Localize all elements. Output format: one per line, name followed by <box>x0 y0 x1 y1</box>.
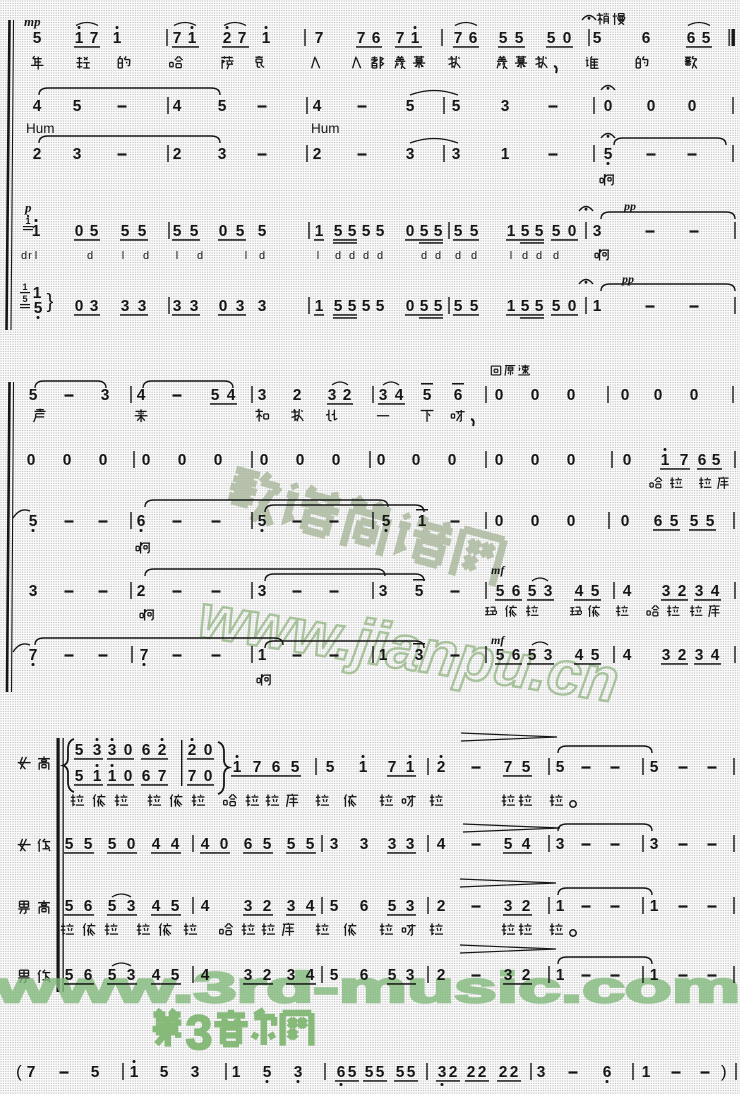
svg-text:2: 2 <box>478 1064 487 1081</box>
svg-text:4: 4 <box>313 98 322 115</box>
svg-text:d: d <box>363 250 369 262</box>
svg-text:1: 1 <box>661 452 670 469</box>
svg-text:5: 5 <box>406 98 415 115</box>
svg-text:3: 3 <box>379 387 388 404</box>
svg-text:1: 1 <box>75 30 84 47</box>
svg-text:0: 0 <box>448 452 457 469</box>
svg-text:d: d <box>435 250 441 262</box>
svg-text:5: 5 <box>552 223 561 240</box>
svg-text:5: 5 <box>454 298 463 315</box>
svg-text:2: 2 <box>449 1064 458 1081</box>
svg-text:5: 5 <box>434 223 443 240</box>
svg-text:5: 5 <box>121 223 130 240</box>
svg-text:1: 1 <box>233 759 242 776</box>
svg-text:1: 1 <box>188 30 197 47</box>
svg-text:0: 0 <box>204 742 213 759</box>
svg-text:7: 7 <box>396 30 405 47</box>
svg-text:0: 0 <box>219 298 228 315</box>
svg-text:6: 6 <box>469 30 478 47</box>
svg-text:5: 5 <box>29 387 38 404</box>
svg-text:4: 4 <box>137 387 146 404</box>
svg-text:5: 5 <box>690 513 699 530</box>
svg-text:3: 3 <box>236 298 245 315</box>
svg-text:0: 0 <box>495 452 504 469</box>
svg-text:5: 5 <box>556 759 565 776</box>
svg-text:0: 0 <box>563 30 572 47</box>
svg-text:3: 3 <box>695 583 704 600</box>
svg-text:4: 4 <box>711 583 720 600</box>
svg-text:4: 4 <box>395 387 404 404</box>
svg-text:1: 1 <box>113 30 122 47</box>
svg-text:mf: mf <box>491 563 505 577</box>
svg-text:0: 0 <box>124 742 133 759</box>
svg-text:3: 3 <box>593 223 602 240</box>
svg-text:3: 3 <box>360 836 369 853</box>
svg-text:0: 0 <box>63 452 72 469</box>
svg-text:4: 4 <box>201 967 210 984</box>
svg-text:7: 7 <box>315 30 324 47</box>
svg-text:3: 3 <box>93 742 102 759</box>
svg-text:3: 3 <box>388 836 397 853</box>
svg-text:2: 2 <box>137 583 146 600</box>
svg-text:5: 5 <box>34 300 43 317</box>
svg-text:4: 4 <box>711 647 720 664</box>
svg-text:3: 3 <box>138 298 147 315</box>
svg-text:1: 1 <box>418 513 427 530</box>
svg-text:3: 3 <box>29 583 38 600</box>
svg-text:1: 1 <box>258 647 267 664</box>
svg-text:5: 5 <box>434 298 443 315</box>
svg-text:1: 1 <box>556 967 565 984</box>
svg-text:5: 5 <box>211 387 220 404</box>
svg-text:7: 7 <box>357 30 366 47</box>
svg-text:2: 2 <box>522 898 531 915</box>
svg-text:3: 3 <box>406 146 415 163</box>
svg-text:): ) <box>721 1062 727 1081</box>
svg-text:3: 3 <box>695 647 704 664</box>
svg-text:d: d <box>522 250 528 262</box>
svg-text:4: 4 <box>437 836 446 853</box>
svg-text:d: d <box>377 250 383 262</box>
svg-text:2: 2 <box>467 1064 476 1081</box>
svg-text:1: 1 <box>501 146 510 163</box>
svg-text:6: 6 <box>360 967 369 984</box>
svg-text:5: 5 <box>90 223 99 240</box>
svg-text:Hum: Hum <box>311 121 340 136</box>
svg-text:d: d <box>335 250 341 262</box>
svg-text:4: 4 <box>522 836 531 853</box>
svg-text:6: 6 <box>642 30 651 47</box>
svg-text:3: 3 <box>504 967 513 984</box>
svg-text:5: 5 <box>382 513 391 530</box>
svg-text:1: 1 <box>93 768 102 785</box>
svg-text:5: 5 <box>330 967 339 984</box>
svg-text:4: 4 <box>201 836 210 853</box>
svg-text:2: 2 <box>263 967 272 984</box>
svg-text:7: 7 <box>454 30 463 47</box>
svg-text:3: 3 <box>186 1007 213 1060</box>
svg-text:6: 6 <box>698 452 707 469</box>
svg-text:3: 3 <box>662 583 671 600</box>
svg-text:5: 5 <box>535 223 544 240</box>
svg-text:5: 5 <box>287 836 296 853</box>
svg-text:5: 5 <box>522 759 531 776</box>
svg-text:5: 5 <box>65 967 74 984</box>
svg-text:0: 0 <box>75 223 84 240</box>
svg-text:6: 6 <box>84 898 93 915</box>
svg-text:3: 3 <box>258 387 267 404</box>
svg-text:r: r <box>28 250 32 262</box>
svg-text:1: 1 <box>556 898 565 915</box>
svg-text:5: 5 <box>330 898 339 915</box>
svg-text:5: 5 <box>535 298 544 315</box>
svg-text:d: d <box>87 250 93 262</box>
svg-text:2: 2 <box>293 387 302 404</box>
svg-text:3: 3 <box>244 898 253 915</box>
svg-text:4: 4 <box>171 836 180 853</box>
svg-text:3: 3 <box>328 387 337 404</box>
svg-text:5: 5 <box>706 513 715 530</box>
svg-text:d: d <box>197 250 203 262</box>
svg-text:2: 2 <box>223 30 232 47</box>
svg-text:4: 4 <box>227 387 236 404</box>
svg-text:l: l <box>317 250 319 262</box>
svg-text:4: 4 <box>152 967 161 984</box>
svg-text:5: 5 <box>160 1064 169 1081</box>
svg-text:0: 0 <box>568 223 577 240</box>
svg-text:0: 0 <box>568 298 577 315</box>
svg-text:3: 3 <box>287 898 296 915</box>
svg-text:3: 3 <box>650 836 659 853</box>
svg-text:5: 5 <box>362 223 371 240</box>
svg-text:}: } <box>47 291 54 313</box>
svg-text:4: 4 <box>33 98 42 115</box>
svg-text:0: 0 <box>567 387 576 404</box>
svg-text:1: 1 <box>130 1064 139 1081</box>
svg-text:0: 0 <box>75 298 84 315</box>
svg-text:5: 5 <box>75 742 84 759</box>
svg-text:1: 1 <box>359 759 368 776</box>
svg-text:1: 1 <box>32 223 41 240</box>
svg-text:2: 2 <box>437 759 446 776</box>
svg-text:5: 5 <box>218 98 227 115</box>
svg-text:0: 0 <box>219 223 228 240</box>
svg-text:3: 3 <box>173 298 182 315</box>
svg-text:3: 3 <box>662 647 671 664</box>
svg-text:1: 1 <box>22 282 27 292</box>
svg-text:5: 5 <box>528 583 537 600</box>
svg-text:3: 3 <box>218 146 227 163</box>
svg-text:5: 5 <box>236 223 245 240</box>
svg-text:6: 6 <box>272 759 281 776</box>
svg-text:3: 3 <box>556 836 565 853</box>
svg-text:7: 7 <box>158 768 167 785</box>
svg-text:7: 7 <box>140 647 149 664</box>
svg-text:3: 3 <box>501 98 510 115</box>
svg-text:6: 6 <box>142 768 151 785</box>
svg-text:5: 5 <box>504 836 513 853</box>
svg-text:0: 0 <box>623 452 632 469</box>
svg-text:0: 0 <box>127 836 136 853</box>
svg-text:(: ( <box>16 1062 22 1081</box>
svg-text:5: 5 <box>396 1064 405 1081</box>
svg-text:5: 5 <box>65 836 74 853</box>
svg-text:7: 7 <box>29 647 38 664</box>
svg-text:3: 3 <box>415 647 424 664</box>
svg-text:5: 5 <box>362 298 371 315</box>
svg-text:1: 1 <box>25 216 30 226</box>
svg-text:5: 5 <box>547 30 556 47</box>
svg-text:d: d <box>349 250 355 262</box>
svg-text:4: 4 <box>623 583 632 600</box>
svg-text:2: 2 <box>343 387 352 404</box>
svg-text:6: 6 <box>360 898 369 915</box>
svg-text:5: 5 <box>604 146 613 163</box>
svg-text:0: 0 <box>567 452 576 469</box>
svg-text:5: 5 <box>29 513 38 530</box>
svg-text:4: 4 <box>306 967 315 984</box>
svg-text:3: 3 <box>244 967 253 984</box>
svg-text:0: 0 <box>688 98 697 115</box>
svg-text:5: 5 <box>138 223 147 240</box>
svg-text:5: 5 <box>326 759 335 776</box>
svg-text:5: 5 <box>173 223 182 240</box>
svg-text:l: l <box>35 250 37 262</box>
svg-text:l: l <box>245 250 247 262</box>
svg-text:0: 0 <box>27 452 36 469</box>
svg-text:5: 5 <box>376 223 385 240</box>
svg-text:5: 5 <box>415 583 424 600</box>
svg-text:1: 1 <box>315 223 324 240</box>
svg-text:1: 1 <box>315 298 324 315</box>
svg-text:3: 3 <box>108 742 117 759</box>
svg-text:5: 5 <box>515 30 524 47</box>
svg-text:3: 3 <box>504 898 513 915</box>
svg-text:3: 3 <box>294 1064 303 1081</box>
svg-text:2: 2 <box>173 146 182 163</box>
svg-text:6: 6 <box>512 647 521 664</box>
svg-text:1: 1 <box>232 1064 241 1081</box>
svg-text:6: 6 <box>244 836 253 853</box>
svg-text:2: 2 <box>510 1064 519 1081</box>
svg-text:5: 5 <box>348 298 357 315</box>
svg-text:5: 5 <box>650 759 659 776</box>
svg-text:d: d <box>553 250 559 262</box>
svg-text:3: 3 <box>379 583 388 600</box>
svg-text:4: 4 <box>152 898 161 915</box>
svg-text:5: 5 <box>376 298 385 315</box>
svg-text:d: d <box>536 250 542 262</box>
svg-text:1: 1 <box>593 298 602 315</box>
svg-text:6: 6 <box>372 30 381 47</box>
svg-text:3: 3 <box>101 387 110 404</box>
svg-text:5: 5 <box>423 387 432 404</box>
svg-text:5: 5 <box>521 223 530 240</box>
svg-text:0: 0 <box>531 513 540 530</box>
svg-text:5: 5 <box>75 768 84 785</box>
svg-text:1: 1 <box>650 967 659 984</box>
svg-text:2: 2 <box>499 1064 508 1081</box>
svg-text:5: 5 <box>108 836 117 853</box>
svg-text:5: 5 <box>263 1064 272 1081</box>
svg-text:0: 0 <box>178 452 187 469</box>
svg-text:0: 0 <box>654 387 663 404</box>
svg-text:0: 0 <box>647 98 656 115</box>
svg-text:0: 0 <box>531 452 540 469</box>
svg-text:5: 5 <box>348 1064 357 1081</box>
svg-text:4: 4 <box>623 647 632 664</box>
svg-text:3: 3 <box>127 967 136 984</box>
svg-text:6: 6 <box>654 513 663 530</box>
svg-text:6: 6 <box>512 583 521 600</box>
svg-text:5: 5 <box>388 967 397 984</box>
svg-text:0: 0 <box>621 513 630 530</box>
svg-text:5: 5 <box>171 898 180 915</box>
svg-text:pp: pp <box>623 199 636 213</box>
svg-text:6: 6 <box>603 1064 612 1081</box>
svg-text:0: 0 <box>495 387 504 404</box>
svg-text:1: 1 <box>507 223 516 240</box>
svg-text:7: 7 <box>504 759 513 776</box>
svg-text:3: 3 <box>191 1064 200 1081</box>
svg-text:Hum: Hum <box>26 121 55 136</box>
svg-text:0: 0 <box>690 387 699 404</box>
svg-text:0: 0 <box>124 768 133 785</box>
svg-text:5: 5 <box>702 30 711 47</box>
svg-text:4: 4 <box>575 583 584 600</box>
svg-text:2: 2 <box>522 967 531 984</box>
svg-text:3: 3 <box>287 967 296 984</box>
svg-text:5: 5 <box>388 898 397 915</box>
svg-text:3: 3 <box>73 146 82 163</box>
svg-text:5: 5 <box>593 30 602 47</box>
svg-text:5: 5 <box>84 836 93 853</box>
svg-text:6: 6 <box>337 1064 346 1081</box>
svg-text:5: 5 <box>291 759 300 776</box>
svg-text:5: 5 <box>521 298 530 315</box>
svg-text:d: d <box>471 250 477 262</box>
svg-text:3: 3 <box>452 146 461 163</box>
svg-text:4: 4 <box>173 98 182 115</box>
svg-text:d: d <box>421 250 427 262</box>
svg-text:5: 5 <box>91 1064 100 1081</box>
svg-text:5: 5 <box>552 298 561 315</box>
svg-text:4: 4 <box>201 898 210 915</box>
svg-text:2: 2 <box>33 146 42 163</box>
svg-text:5: 5 <box>496 647 505 664</box>
svg-text:7: 7 <box>253 759 262 776</box>
svg-text:1: 1 <box>507 298 516 315</box>
svg-text:5: 5 <box>591 583 600 600</box>
svg-text:0: 0 <box>406 223 415 240</box>
svg-text:0: 0 <box>567 513 576 530</box>
svg-text:l: l <box>122 250 124 262</box>
svg-text:5: 5 <box>190 223 199 240</box>
svg-text:2: 2 <box>678 647 687 664</box>
svg-text:5: 5 <box>258 223 267 240</box>
svg-text:5: 5 <box>22 294 27 304</box>
svg-text:5: 5 <box>365 1064 374 1081</box>
svg-text:p: p <box>24 200 32 215</box>
svg-text:5: 5 <box>348 223 357 240</box>
svg-text:5: 5 <box>712 452 721 469</box>
svg-text:mf: mf <box>491 633 505 647</box>
svg-text:4: 4 <box>152 836 161 853</box>
svg-text:6: 6 <box>137 513 146 530</box>
svg-text:5: 5 <box>591 647 600 664</box>
svg-text:5: 5 <box>407 1064 416 1081</box>
svg-text:5: 5 <box>334 298 343 315</box>
svg-text:0: 0 <box>142 452 151 469</box>
svg-text:3: 3 <box>438 1064 447 1081</box>
svg-text:5: 5 <box>334 223 343 240</box>
svg-text:pp: pp <box>621 272 634 286</box>
svg-text:3: 3 <box>127 898 136 915</box>
svg-text:6: 6 <box>454 387 463 404</box>
svg-text:2: 2 <box>678 583 687 600</box>
svg-text:6: 6 <box>84 967 93 984</box>
svg-text:0: 0 <box>214 452 223 469</box>
svg-text:6: 6 <box>142 742 151 759</box>
svg-text:0: 0 <box>220 836 229 853</box>
svg-text:3: 3 <box>90 298 99 315</box>
svg-text:2: 2 <box>313 146 322 163</box>
svg-text:1: 1 <box>642 1064 651 1081</box>
svg-text:5: 5 <box>420 223 429 240</box>
svg-text:5: 5 <box>499 30 508 47</box>
svg-text:5: 5 <box>108 967 117 984</box>
svg-text:5: 5 <box>454 223 463 240</box>
svg-text:3: 3 <box>406 898 415 915</box>
svg-text:3: 3 <box>258 583 267 600</box>
svg-text:1: 1 <box>379 647 388 664</box>
svg-text:0: 0 <box>531 387 540 404</box>
svg-text:2: 2 <box>158 742 167 759</box>
svg-text:5: 5 <box>108 898 117 915</box>
svg-text:5: 5 <box>528 647 537 664</box>
svg-text:5: 5 <box>452 98 461 115</box>
svg-text:2: 2 <box>263 898 272 915</box>
svg-text:0: 0 <box>377 452 386 469</box>
svg-text:5: 5 <box>420 298 429 315</box>
svg-text:7: 7 <box>188 768 197 785</box>
svg-text:2: 2 <box>437 967 446 984</box>
svg-text:0: 0 <box>495 513 504 530</box>
svg-text:d: d <box>21 250 27 262</box>
svg-text:l: l <box>510 250 512 262</box>
svg-text:d: d <box>143 250 149 262</box>
svg-text:5: 5 <box>670 513 679 530</box>
svg-text:3: 3 <box>330 836 339 853</box>
svg-text:5: 5 <box>33 30 42 47</box>
svg-text:5: 5 <box>470 223 479 240</box>
svg-text:d: d <box>455 250 461 262</box>
svg-text:1: 1 <box>406 759 415 776</box>
svg-text:5: 5 <box>65 898 74 915</box>
svg-text:3: 3 <box>406 967 415 984</box>
svg-text:1: 1 <box>411 30 420 47</box>
svg-text:5: 5 <box>496 583 505 600</box>
svg-text:l: l <box>176 250 178 262</box>
svg-text:3: 3 <box>406 836 415 853</box>
svg-text:5: 5 <box>376 1064 385 1081</box>
svg-text:3: 3 <box>190 298 199 315</box>
svg-text:5: 5 <box>171 967 180 984</box>
svg-text:5: 5 <box>263 836 272 853</box>
svg-text:0: 0 <box>604 98 613 115</box>
svg-text:6: 6 <box>687 30 696 47</box>
svg-text:0: 0 <box>99 452 108 469</box>
